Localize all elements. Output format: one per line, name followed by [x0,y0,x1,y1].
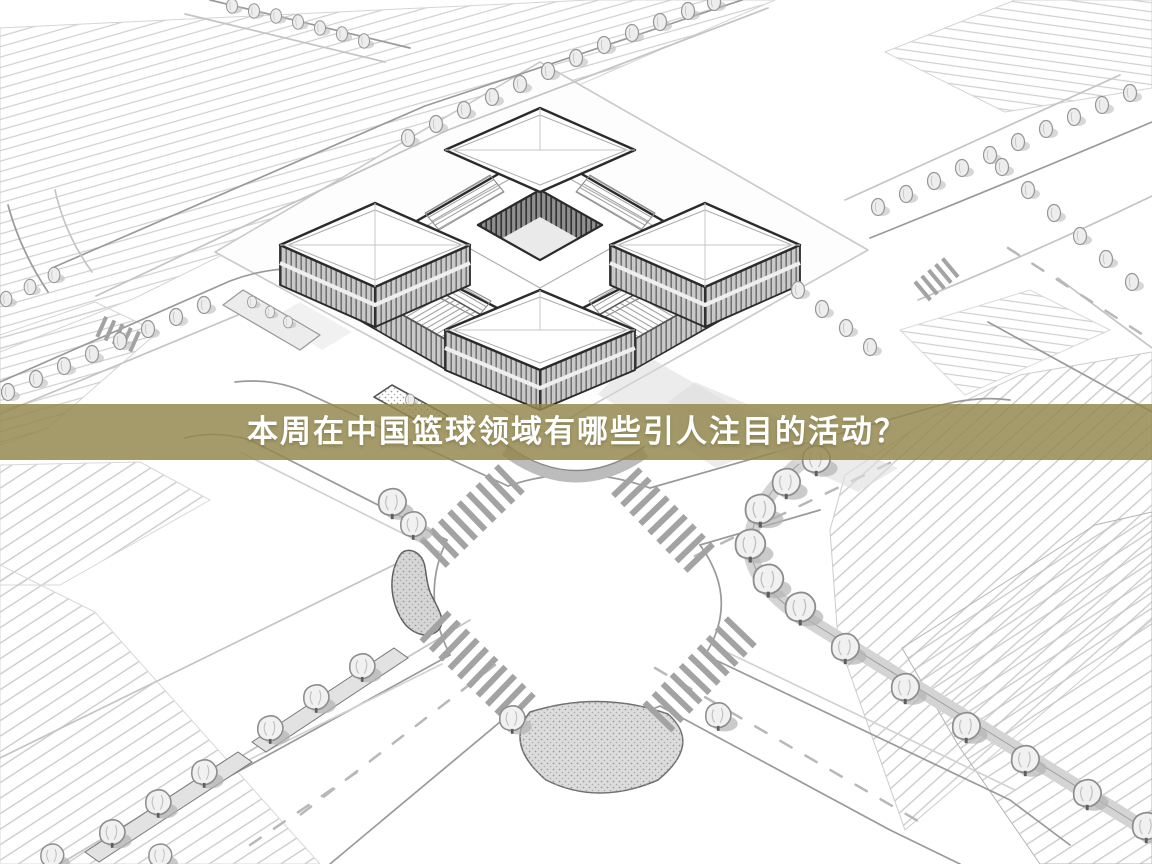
crosswalk-upper-left [419,464,525,568]
screenshot-root: 本周在中国篮球领域有哪些引人注目的活动？ [0,0,1152,864]
crosswalk-right-small [913,257,959,301]
crosswalk-upper-right [611,467,715,573]
crosswalk-lower-right [643,616,757,732]
title-banner: 本周在中国篮球领域有哪些引人注目的活动？ [0,404,1152,460]
banner-title: 本周在中国篮球领域有哪些引人注目的活动？ [247,404,907,460]
